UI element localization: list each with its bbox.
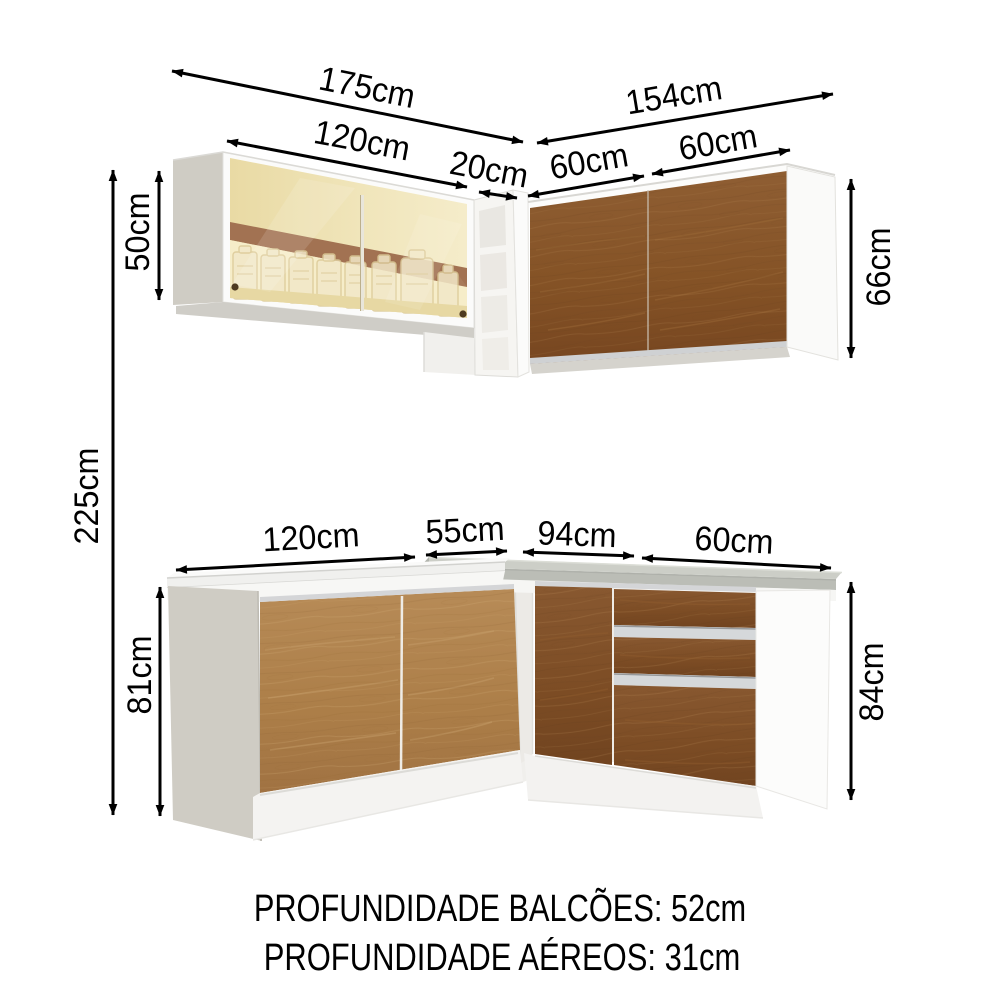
svg-text:120cm: 120cm [262,516,361,559]
svg-text:PROFUNDIDADE AÉREOS: 31cm: PROFUNDIDADE AÉREOS: 31cm [264,936,741,979]
svg-text:84cm: 84cm [853,643,891,722]
svg-text:66cm: 66cm [860,228,898,307]
svg-text:50cm: 50cm [119,193,157,272]
svg-text:60cm: 60cm [694,520,775,562]
svg-text:55cm: 55cm [425,510,506,552]
svg-text:225cm: 225cm [68,448,106,545]
svg-text:81cm: 81cm [121,636,159,715]
svg-text:60cm: 60cm [676,117,760,168]
svg-text:20cm: 20cm [447,144,532,196]
svg-text:175cm: 175cm [316,60,419,116]
svg-text:PROFUNDIDADE BALCÕES: 52cm: PROFUNDIDADE BALCÕES: 52cm [254,886,746,930]
svg-text:94cm: 94cm [537,515,617,556]
